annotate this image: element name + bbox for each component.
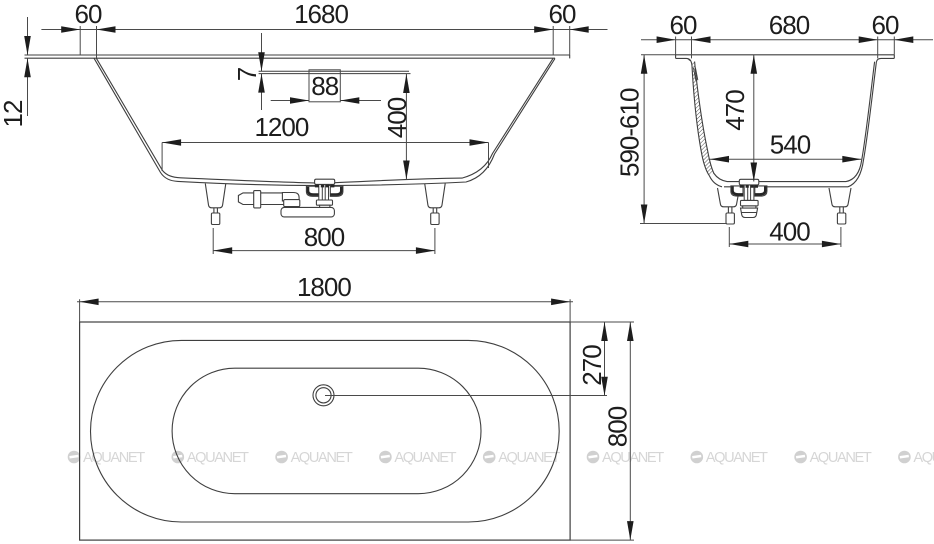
svg-text:800: 800 <box>304 222 345 252</box>
svg-text:60: 60 <box>872 10 899 40</box>
svg-text:1680: 1680 <box>294 0 348 29</box>
svg-text:400: 400 <box>382 97 412 138</box>
svg-text:400: 400 <box>769 217 810 247</box>
svg-text:88: 88 <box>311 71 338 101</box>
svg-text:60: 60 <box>670 10 697 40</box>
svg-text:7: 7 <box>232 67 262 81</box>
svg-text:270: 270 <box>577 345 607 386</box>
svg-text:470: 470 <box>720 90 750 131</box>
svg-text:AQUANET: AQUANET <box>83 450 145 466</box>
svg-text:1200: 1200 <box>254 112 308 142</box>
svg-text:540: 540 <box>770 130 811 160</box>
svg-text:1800: 1800 <box>297 272 351 302</box>
svg-text:680: 680 <box>769 10 810 40</box>
svg-text:590-610: 590-610 <box>614 88 644 177</box>
svg-text:800: 800 <box>603 406 633 447</box>
svg-text:60: 60 <box>75 0 102 29</box>
svg-text:60: 60 <box>549 0 576 29</box>
svg-text:12: 12 <box>0 100 28 127</box>
